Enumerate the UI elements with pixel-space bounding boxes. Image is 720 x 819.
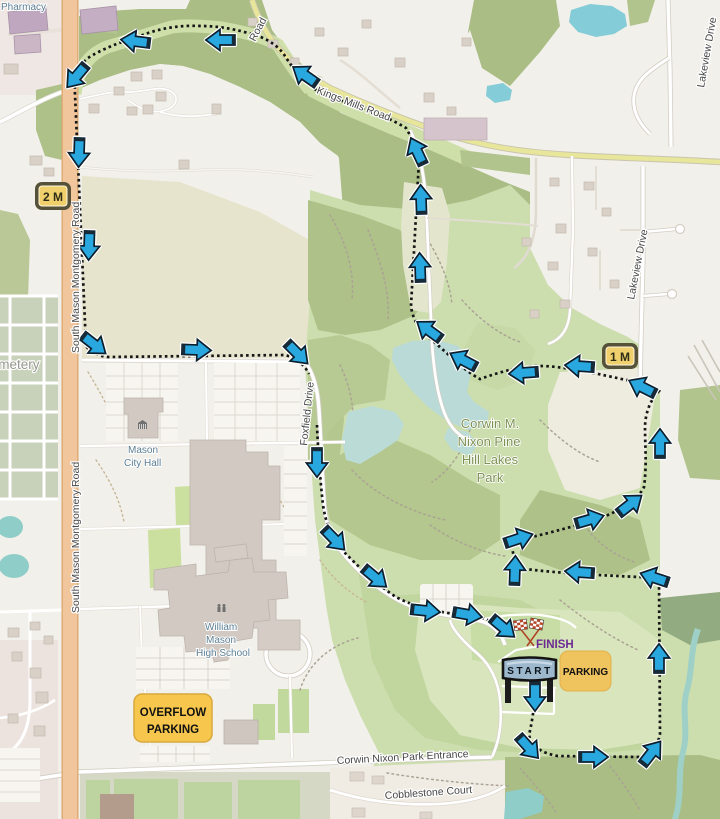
svg-text:Mason: Mason: [128, 445, 158, 456]
svg-text:FINISH: FINISH: [536, 639, 574, 651]
svg-text:William: William: [205, 622, 237, 633]
svg-text:South Mason Montgomery Road: South Mason Montgomery Road: [70, 202, 82, 353]
svg-text:PARKING: PARKING: [563, 667, 609, 678]
svg-text:Park: Park: [477, 470, 504, 485]
svg-text:Hill Lakes: Hill Lakes: [462, 452, 519, 467]
svg-text:High School: High School: [196, 648, 250, 659]
svg-text:START: START: [507, 666, 553, 677]
svg-text:Nixon Pine: Nixon Pine: [458, 434, 521, 449]
svg-text:OVERFLOW: OVERFLOW: [140, 707, 207, 719]
svg-text:South Mason Montgomery Road: South Mason Montgomery Road: [70, 462, 82, 613]
svg-text:2 M: 2 M: [43, 190, 63, 204]
svg-text:Pharmacy: Pharmacy: [1, 2, 46, 13]
svg-text:1 M: 1 M: [610, 350, 630, 364]
svg-text:Cemetery: Cemetery: [0, 357, 40, 372]
svg-text:PARKING: PARKING: [147, 724, 199, 736]
svg-text:Corwin M.: Corwin M.: [461, 416, 520, 431]
svg-text:City Hall: City Hall: [124, 458, 161, 469]
svg-text:Mason: Mason: [206, 635, 236, 646]
